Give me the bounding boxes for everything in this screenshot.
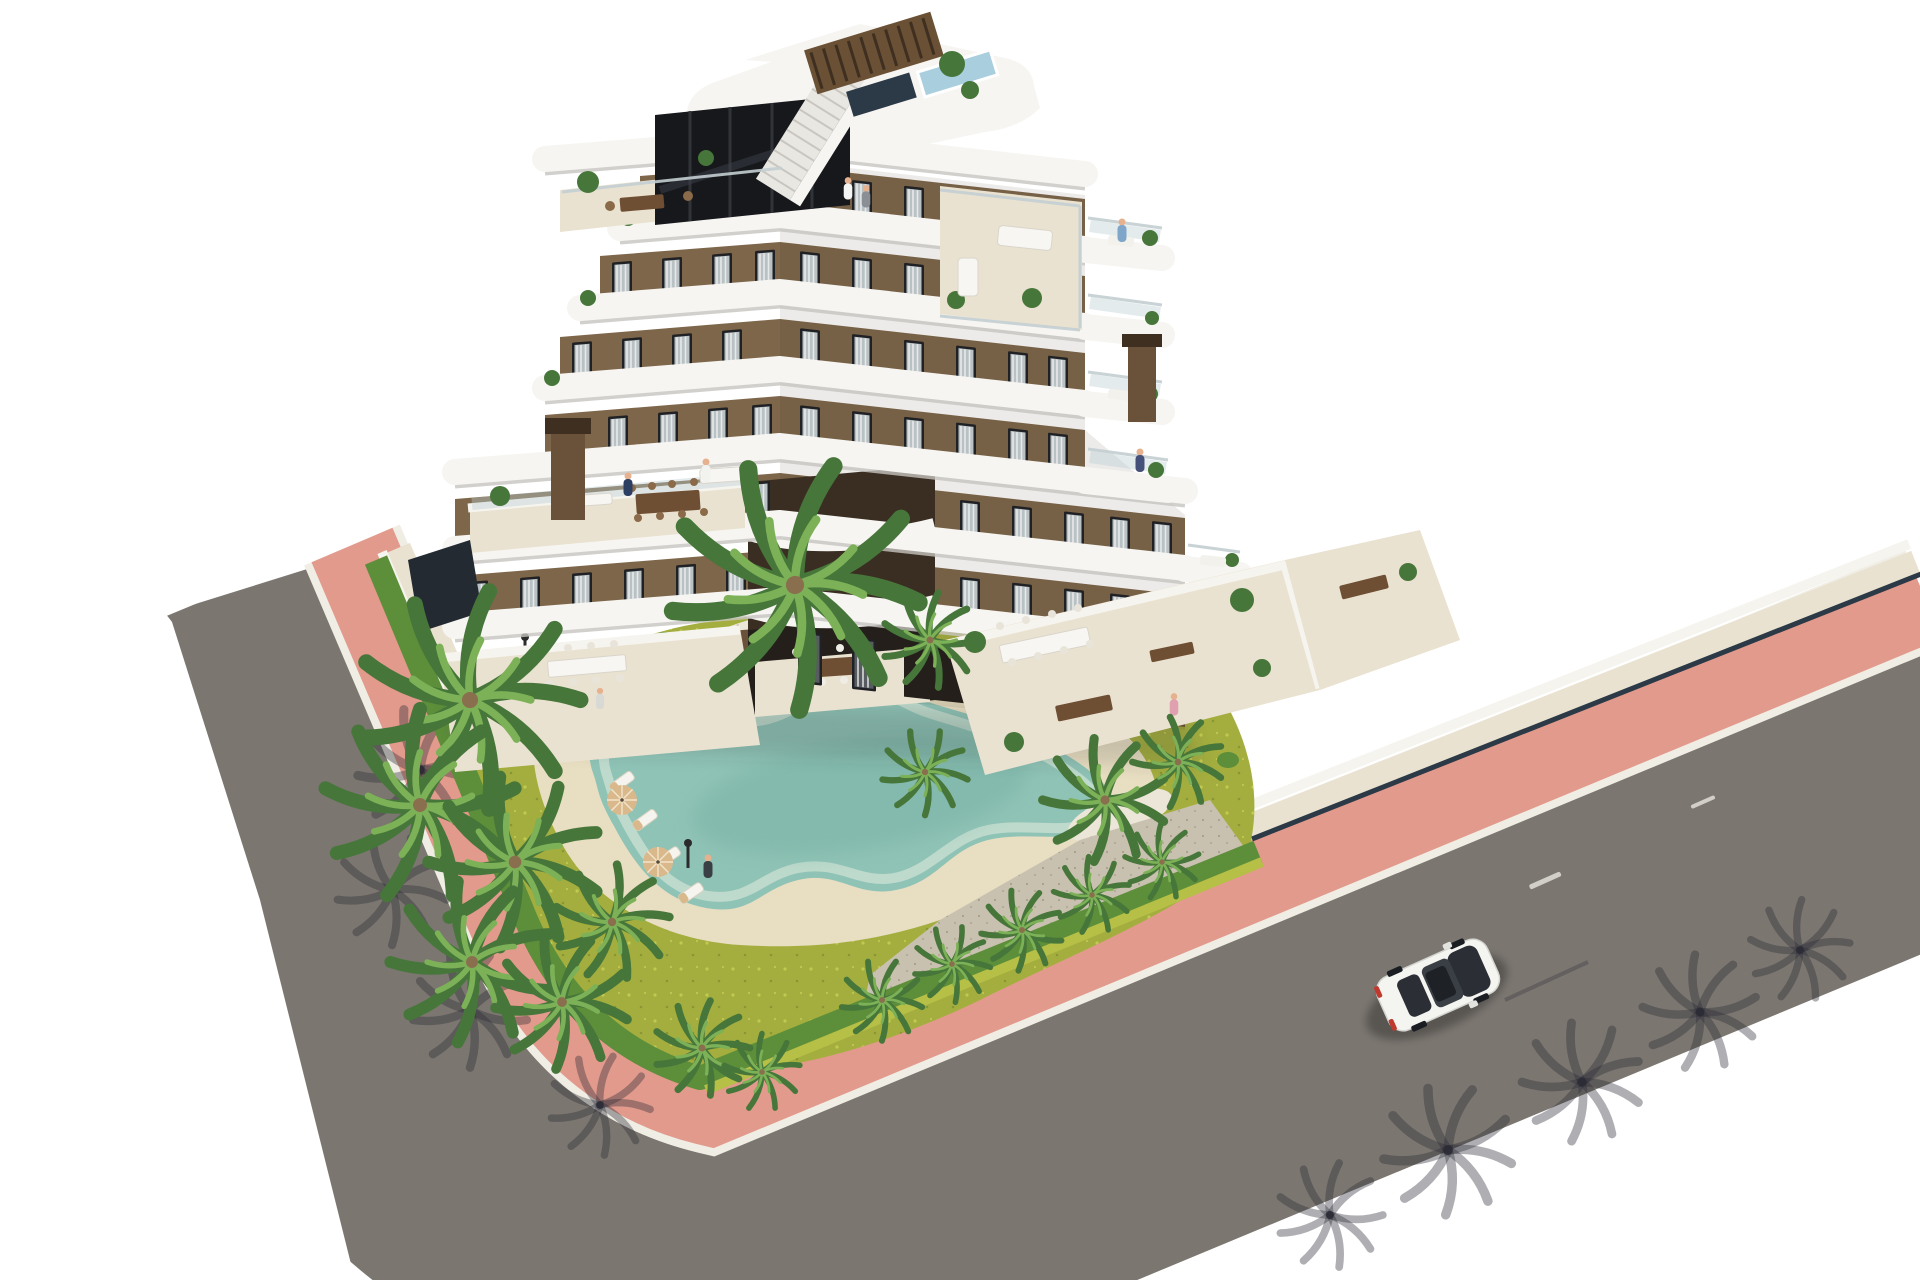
rooftop-person <box>844 177 853 199</box>
render-canvas: Aerial 3D render of a modern apartment c… <box>0 0 1920 1280</box>
balcony-person <box>1118 219 1127 243</box>
terrace-person <box>702 459 711 483</box>
terrace-person <box>624 473 633 497</box>
balcony-person <box>1136 449 1145 473</box>
ground-person <box>596 688 604 709</box>
terrace-plant <box>490 486 510 506</box>
scene: Aerial 3D render of a modern apartment c… <box>0 0 1920 1280</box>
walking-person <box>1170 693 1179 715</box>
terrace-bench <box>582 493 613 506</box>
pool-lamp-head <box>684 839 692 847</box>
rooftop-person <box>862 185 871 207</box>
